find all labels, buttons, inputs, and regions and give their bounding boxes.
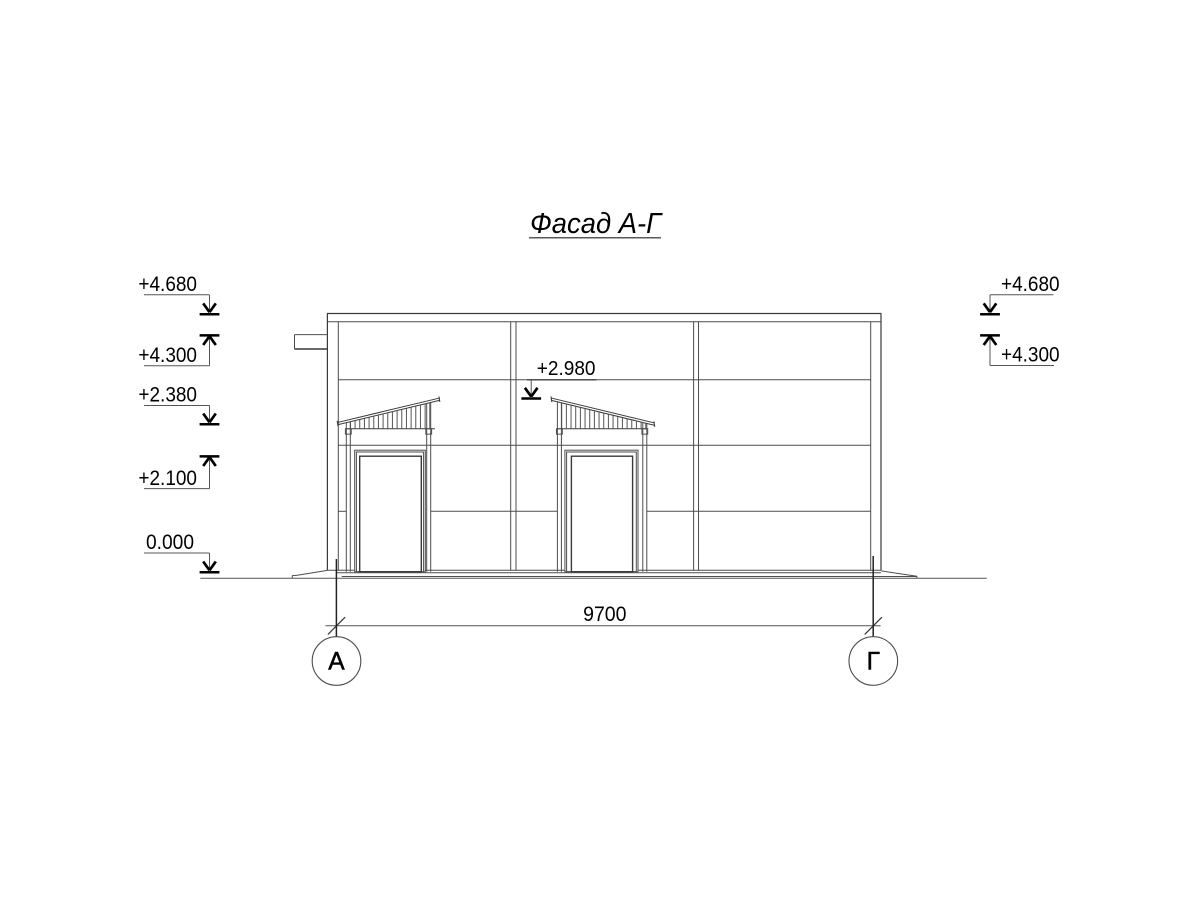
svg-text:+4.300: +4.300: [138, 342, 197, 367]
svg-text:+2.380: +2.380: [138, 382, 197, 407]
svg-text:+2.980: +2.980: [537, 357, 596, 380]
svg-text:+4.680: +4.680: [1001, 271, 1060, 296]
svg-text:Фасад А-Г: Фасад А-Г: [530, 208, 663, 240]
svg-text:9700: 9700: [583, 603, 626, 626]
svg-text:+4.680: +4.680: [138, 271, 197, 296]
svg-text:0.000: 0.000: [146, 529, 194, 554]
svg-text:А: А: [328, 649, 345, 676]
svg-text:+4.300: +4.300: [1001, 342, 1060, 367]
svg-text:Г: Г: [867, 649, 880, 676]
svg-text:+2.100: +2.100: [138, 465, 197, 490]
